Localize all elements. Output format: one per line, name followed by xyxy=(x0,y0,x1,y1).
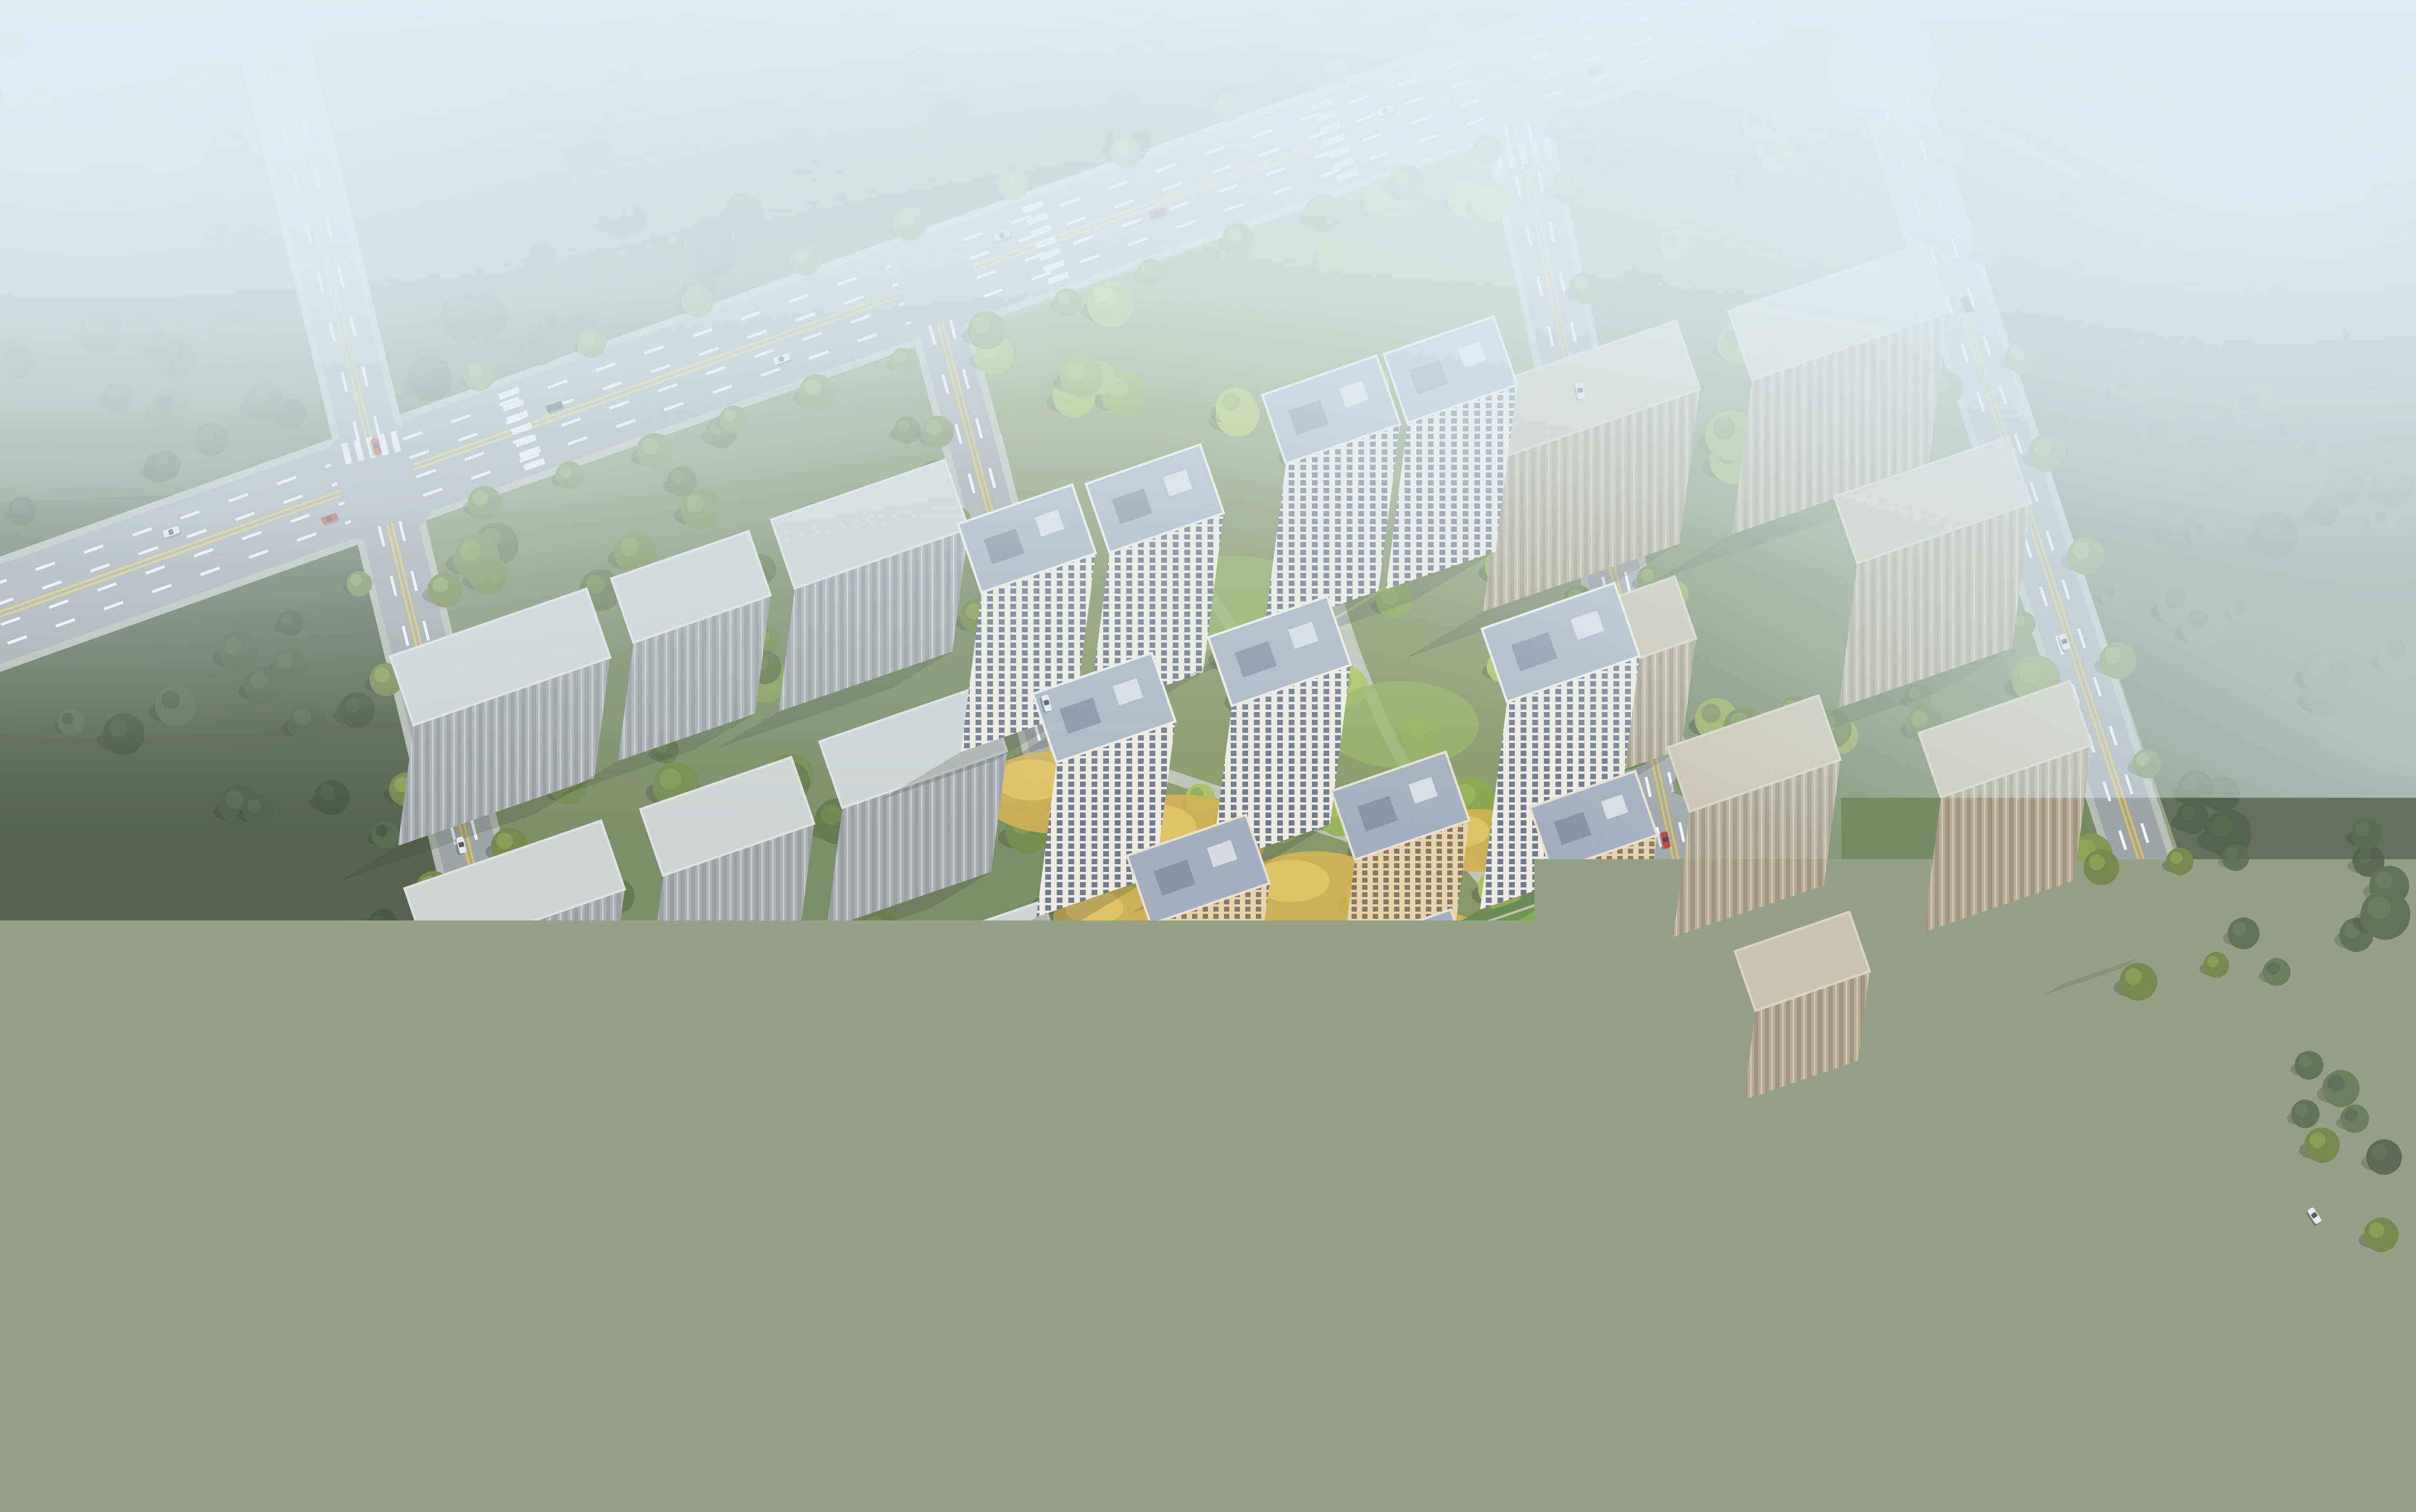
layer-haze xyxy=(0,0,2416,1512)
haze-global-mist xyxy=(0,0,2416,1512)
aerial-masterplan-render xyxy=(0,0,2416,1512)
